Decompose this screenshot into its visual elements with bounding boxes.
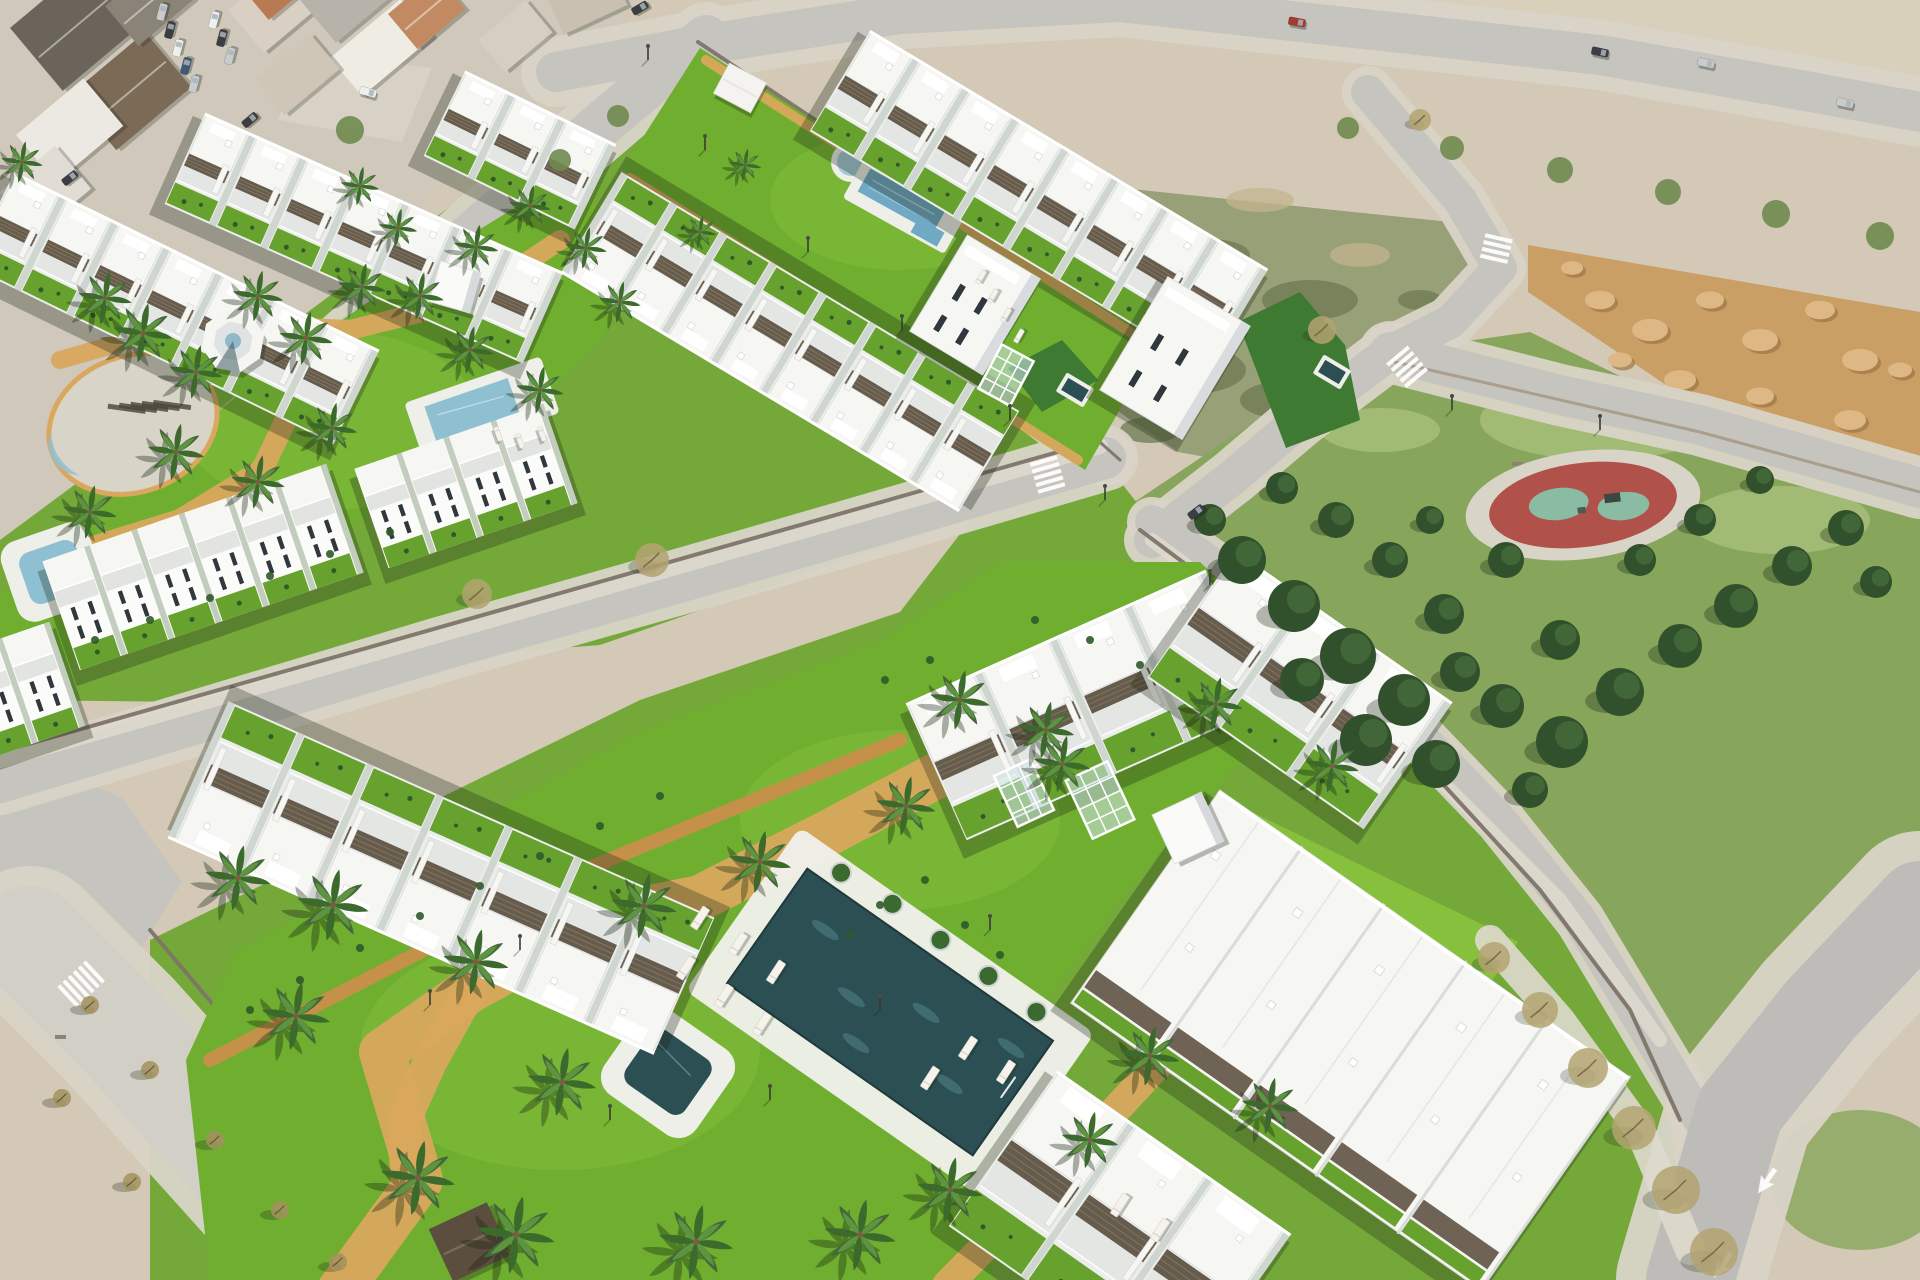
hedge-bush: [1136, 661, 1144, 669]
palm-crown: [947, 1187, 953, 1193]
palm-crown: [415, 1175, 422, 1182]
hedge-bush: [91, 636, 99, 644]
scrub-blob: [1226, 188, 1294, 212]
pine-highlight: [1455, 656, 1477, 678]
pine-highlight: [1696, 507, 1714, 525]
palm-crown: [418, 294, 422, 298]
hedge-bush: [356, 944, 364, 952]
palm-crown: [88, 510, 93, 515]
hedge-bush: [1031, 616, 1039, 624]
dirt-mound: [1608, 353, 1632, 368]
street-light-head: [768, 1084, 772, 1088]
aerial-render-figure: [0, 0, 1920, 1280]
hedge-bush: [921, 876, 929, 884]
palm-crown: [20, 160, 24, 164]
palm-crown: [513, 1232, 520, 1239]
palm-crown: [957, 697, 962, 702]
street-light-head: [518, 934, 522, 938]
hedge-bush: [1086, 636, 1094, 644]
palm-crown: [256, 294, 260, 298]
street-tree: [1655, 179, 1681, 205]
palm-crown: [330, 426, 334, 430]
hedge-bush: [386, 528, 394, 536]
pine-highlight: [1674, 628, 1698, 652]
street-tree: [1547, 157, 1573, 183]
pine-highlight: [1296, 662, 1320, 686]
bench: [55, 1035, 66, 1039]
pine-highlight: [1385, 545, 1405, 565]
palm-crown: [641, 903, 647, 909]
street-tree: [549, 149, 571, 171]
pine-highlight: [1359, 719, 1388, 748]
palm-crown: [473, 959, 479, 965]
palm-crown: [1330, 764, 1335, 769]
street-light-head: [988, 914, 992, 918]
play-structure: [1577, 507, 1586, 514]
hedge-bush: [876, 901, 884, 909]
pine-highlight: [1397, 679, 1426, 708]
dirt-mound: [1632, 319, 1668, 341]
palm-crown: [618, 300, 622, 304]
dirt-mound: [1805, 301, 1835, 320]
palm-crown: [304, 336, 309, 341]
dirt-mound: [1888, 363, 1912, 378]
palm-crown: [538, 388, 542, 392]
palm-crown: [396, 226, 399, 229]
hedge-bush: [476, 882, 484, 890]
palm-crown: [235, 875, 241, 881]
street-light-head: [703, 134, 707, 138]
street-tree: [1866, 222, 1894, 250]
pine-highlight: [1426, 509, 1441, 524]
palm-crown: [474, 245, 478, 249]
palm-crown: [293, 1013, 299, 1019]
palm-crown: [559, 1079, 565, 1085]
palm-crown: [1214, 702, 1219, 707]
hedge-bush: [596, 822, 604, 830]
street-tree: [336, 116, 364, 144]
pine-highlight: [1555, 721, 1584, 750]
pine-highlight: [1636, 547, 1654, 565]
pine-highlight: [1756, 469, 1771, 484]
palm-crown: [103, 296, 108, 301]
hedge-bush: [536, 852, 544, 860]
pine-highlight: [1439, 598, 1461, 620]
pine-highlight: [1278, 475, 1296, 493]
pine-highlight: [1525, 775, 1545, 795]
pine-highlight: [1841, 513, 1861, 533]
street-light-head: [1208, 569, 1212, 573]
palm-crown: [360, 285, 364, 289]
hedge-bush: [326, 550, 334, 558]
hedge-bush: [926, 656, 934, 664]
street-light-head: [1103, 484, 1107, 488]
pine-highlight: [1496, 688, 1520, 712]
palm-crown: [1044, 728, 1049, 733]
palm-crown: [744, 164, 747, 167]
street-tree: [607, 105, 629, 127]
dirt-mound: [1842, 349, 1878, 371]
pine-highlight: [1501, 545, 1521, 565]
dirt-mound: [1585, 291, 1615, 310]
street-tree: [1337, 117, 1359, 139]
palm-crown: [468, 348, 472, 352]
hedge-bush: [146, 616, 154, 624]
street-light-head: [1008, 404, 1012, 408]
scrub-blob: [1330, 243, 1390, 267]
palm-crown: [1147, 1053, 1152, 1058]
dirt-mound: [1561, 261, 1583, 275]
dirt-mound: [1834, 410, 1866, 430]
pine-highlight: [1236, 541, 1262, 567]
hedge-bush: [961, 921, 969, 929]
hedge-bush: [206, 594, 214, 602]
pine-highlight: [1430, 745, 1456, 771]
aerial-development-render: [0, 0, 1920, 1280]
palm-crown: [693, 1239, 700, 1246]
palm-crown: [256, 480, 261, 485]
palm-crown: [903, 803, 908, 808]
street-light-head: [428, 989, 432, 993]
palm-crown: [174, 450, 179, 455]
pine-highlight: [1555, 624, 1577, 646]
palm-crown: [194, 370, 199, 375]
palm-crown: [1088, 1138, 1093, 1143]
pine-highlight: [1872, 569, 1890, 587]
street-light-head: [806, 236, 810, 240]
palm-crown: [1060, 762, 1065, 767]
pine-highlight: [1787, 550, 1809, 572]
dirt-mound: [1746, 387, 1774, 404]
hedge-bush: [416, 912, 424, 920]
street-light-head: [1598, 414, 1602, 418]
palm-crown: [1268, 1104, 1273, 1109]
hedge-bush: [846, 931, 854, 939]
street-light-head: [608, 1104, 612, 1108]
palm-crown: [330, 902, 336, 908]
street-tree: [1762, 200, 1790, 228]
street-light-head: [878, 994, 882, 998]
hedge-bush: [996, 951, 1004, 959]
palm-crown: [857, 1232, 863, 1238]
pine-highlight: [1730, 588, 1754, 612]
car-windshield: [1297, 19, 1303, 26]
palm-crown: [528, 204, 532, 208]
hedge-bush: [881, 676, 889, 684]
palm-crown: [584, 246, 588, 250]
palm-crown: [140, 330, 145, 335]
dirt-mound: [1696, 291, 1724, 308]
palm-crown: [757, 859, 762, 864]
street-light-head: [646, 44, 650, 48]
pine-highlight: [1287, 585, 1316, 614]
palm-crown: [358, 184, 361, 187]
street-light-head: [900, 314, 904, 318]
hedge-bush: [296, 976, 304, 984]
pine-highlight: [1340, 633, 1371, 664]
street-light-head: [1450, 394, 1454, 398]
pine-highlight: [1206, 507, 1224, 525]
palm-crown: [699, 231, 702, 234]
pine-highlight: [1614, 673, 1640, 699]
hedge-bush: [246, 1006, 254, 1014]
hedge-bush: [266, 572, 274, 580]
dirt-mound: [1742, 329, 1778, 351]
street-tree: [1440, 136, 1464, 160]
hedge-bush: [656, 792, 664, 800]
pine-highlight: [1331, 505, 1351, 525]
